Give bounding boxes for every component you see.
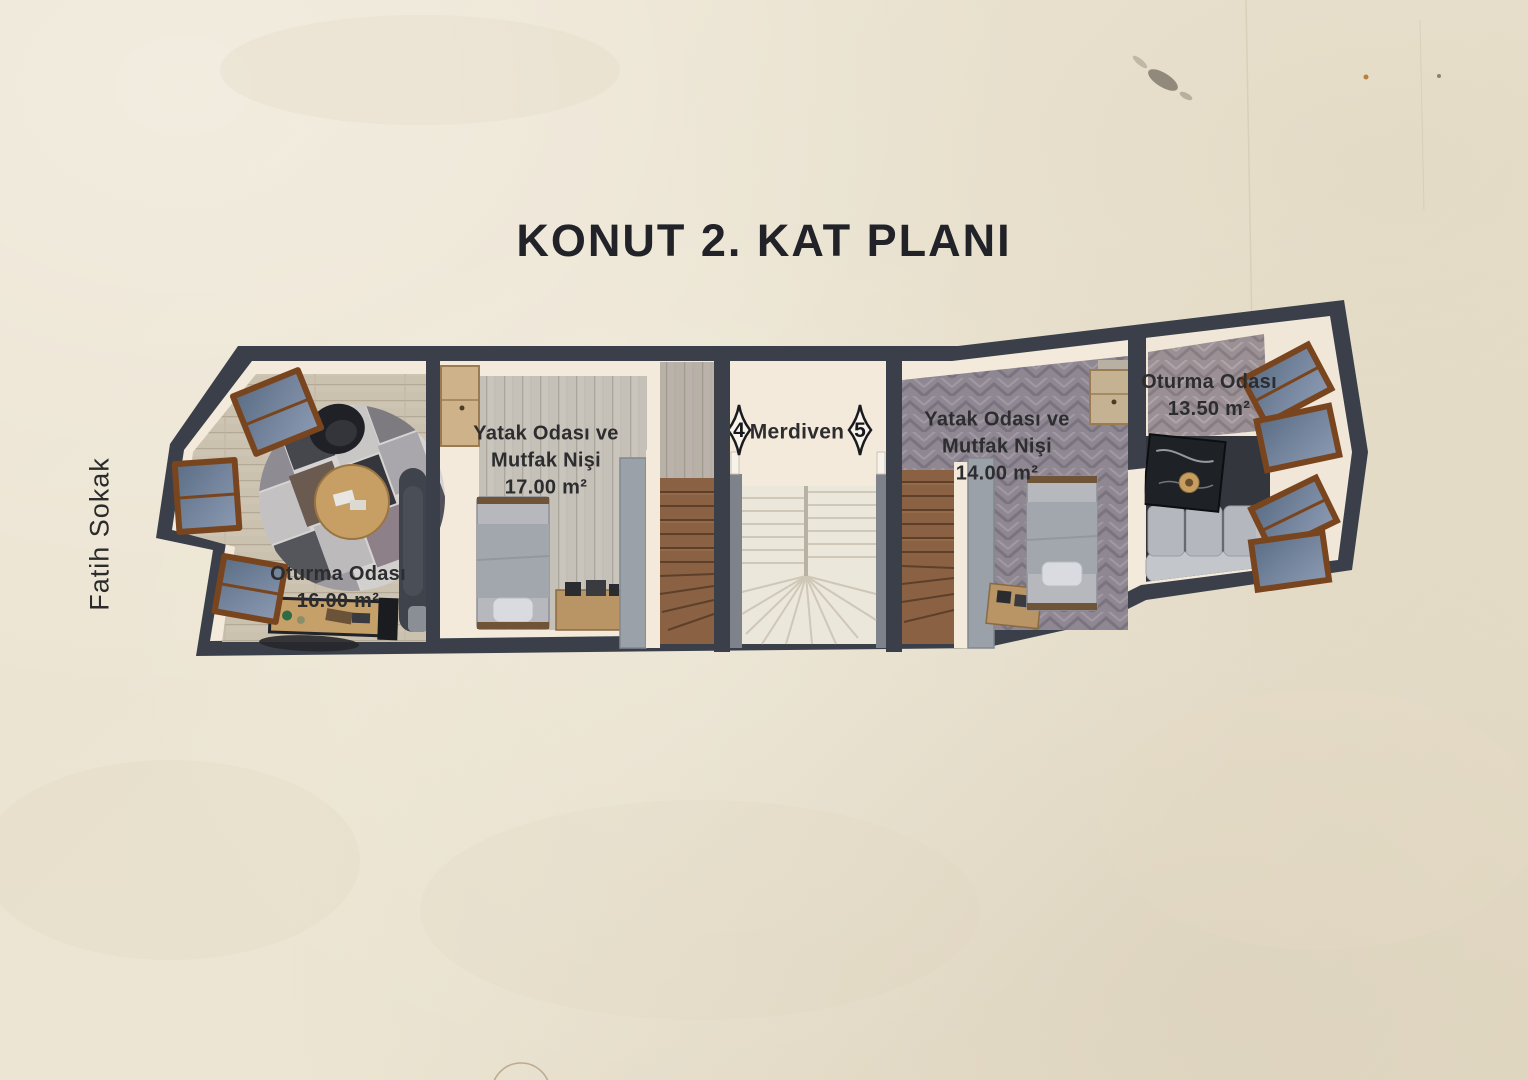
marble-coffee-table xyxy=(1143,434,1226,512)
dresser xyxy=(556,580,622,630)
bed xyxy=(1027,476,1097,610)
niche-wall xyxy=(954,462,968,648)
room-label-yatak-1: Yatak Odası ve Mutfak Nişi 17.00 m² xyxy=(473,421,618,502)
stairs-label: Merdiven xyxy=(750,419,845,446)
room-area: 16.00 m² xyxy=(270,588,406,615)
room-name: Yatak Odası ve xyxy=(924,407,1069,434)
marker-number: 4 xyxy=(733,419,745,442)
bed xyxy=(477,497,549,629)
coffee-table xyxy=(315,465,389,539)
door-leaf xyxy=(731,452,739,474)
floor-plan-drawing: 4 5 xyxy=(0,0,1528,1080)
rust-speck xyxy=(1364,75,1369,80)
room-area: 14.00 m² xyxy=(924,461,1069,488)
room-name: Mutfak Nişi xyxy=(473,448,618,475)
room-yatak-1 xyxy=(441,362,714,648)
room-name: Oturma Odası xyxy=(1141,369,1277,396)
door-leaf xyxy=(877,452,885,474)
window-icon xyxy=(1251,532,1329,590)
floor-plan-page: 4 5 xyxy=(0,0,1528,1080)
room-name: Oturma Odası xyxy=(270,561,406,588)
room-name: Mutfak Nişi xyxy=(924,434,1069,461)
room-name: Yatak Odası ve xyxy=(473,421,618,448)
marker-number: 5 xyxy=(854,419,866,442)
room-oturma-2 xyxy=(1143,317,1351,590)
room-label-oturma-1: Oturma Odası 16.00 m² xyxy=(270,561,406,615)
stairs-name: Merdiven xyxy=(750,419,845,446)
room-area: 13.50 m² xyxy=(1141,396,1277,423)
wood-stairs-right xyxy=(902,470,954,644)
room-label-oturma-2: Oturma Odası 13.50 m² xyxy=(1141,369,1277,423)
wood-stairs-left xyxy=(660,478,714,644)
ring-stain xyxy=(492,1063,550,1080)
room-label-yatak-2: Yatak Odası ve Mutfak Nişi 14.00 m² xyxy=(924,407,1069,488)
street-label: Fatih Sokak xyxy=(85,457,116,611)
page-title: KONUT 2. KAT PLANI xyxy=(516,215,1011,267)
wardrobe-panel xyxy=(620,458,646,648)
pencil-smudge xyxy=(1131,54,1193,102)
room-area: 17.00 m² xyxy=(473,475,618,502)
room-yatak-2 xyxy=(902,356,1138,648)
niche-wall xyxy=(646,450,660,648)
window-icon xyxy=(175,460,240,532)
